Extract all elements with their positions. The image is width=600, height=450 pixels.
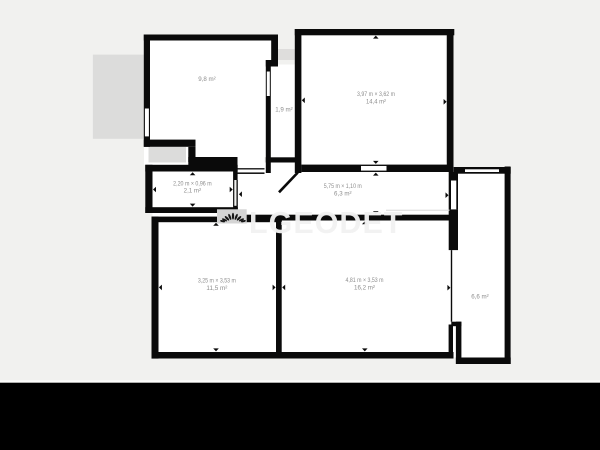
svg-text:6,6 m²: 6,6 m² <box>471 294 489 301</box>
svg-text:5,75 m × 1,10 m: 5,75 m × 1,10 m <box>324 183 362 190</box>
svg-text:3,25 m × 3,53 m: 3,25 m × 3,53 m <box>198 278 236 285</box>
svg-text:9,8 m²: 9,8 m² <box>198 76 216 83</box>
svg-text:16,2 m²: 16,2 m² <box>354 284 375 291</box>
svg-text:2,20 m × 0,96 m: 2,20 m × 0,96 m <box>173 180 212 187</box>
svg-text:11,5 m²: 11,5 m² <box>206 285 227 292</box>
svg-text:3,97 m × 3,62 m: 3,97 m × 3,62 m <box>357 91 395 98</box>
svg-text:6,3 m²: 6,3 m² <box>334 191 352 198</box>
svg-text:14,4 m²: 14,4 m² <box>366 99 386 106</box>
svg-text:LGEODET: LGEODET <box>249 206 403 240</box>
svg-text:2,1 m²: 2,1 m² <box>184 188 202 195</box>
svg-text:4,81 m × 3,53 m: 4,81 m × 3,53 m <box>346 277 384 284</box>
svg-text:1,9 m²: 1,9 m² <box>275 107 293 114</box>
